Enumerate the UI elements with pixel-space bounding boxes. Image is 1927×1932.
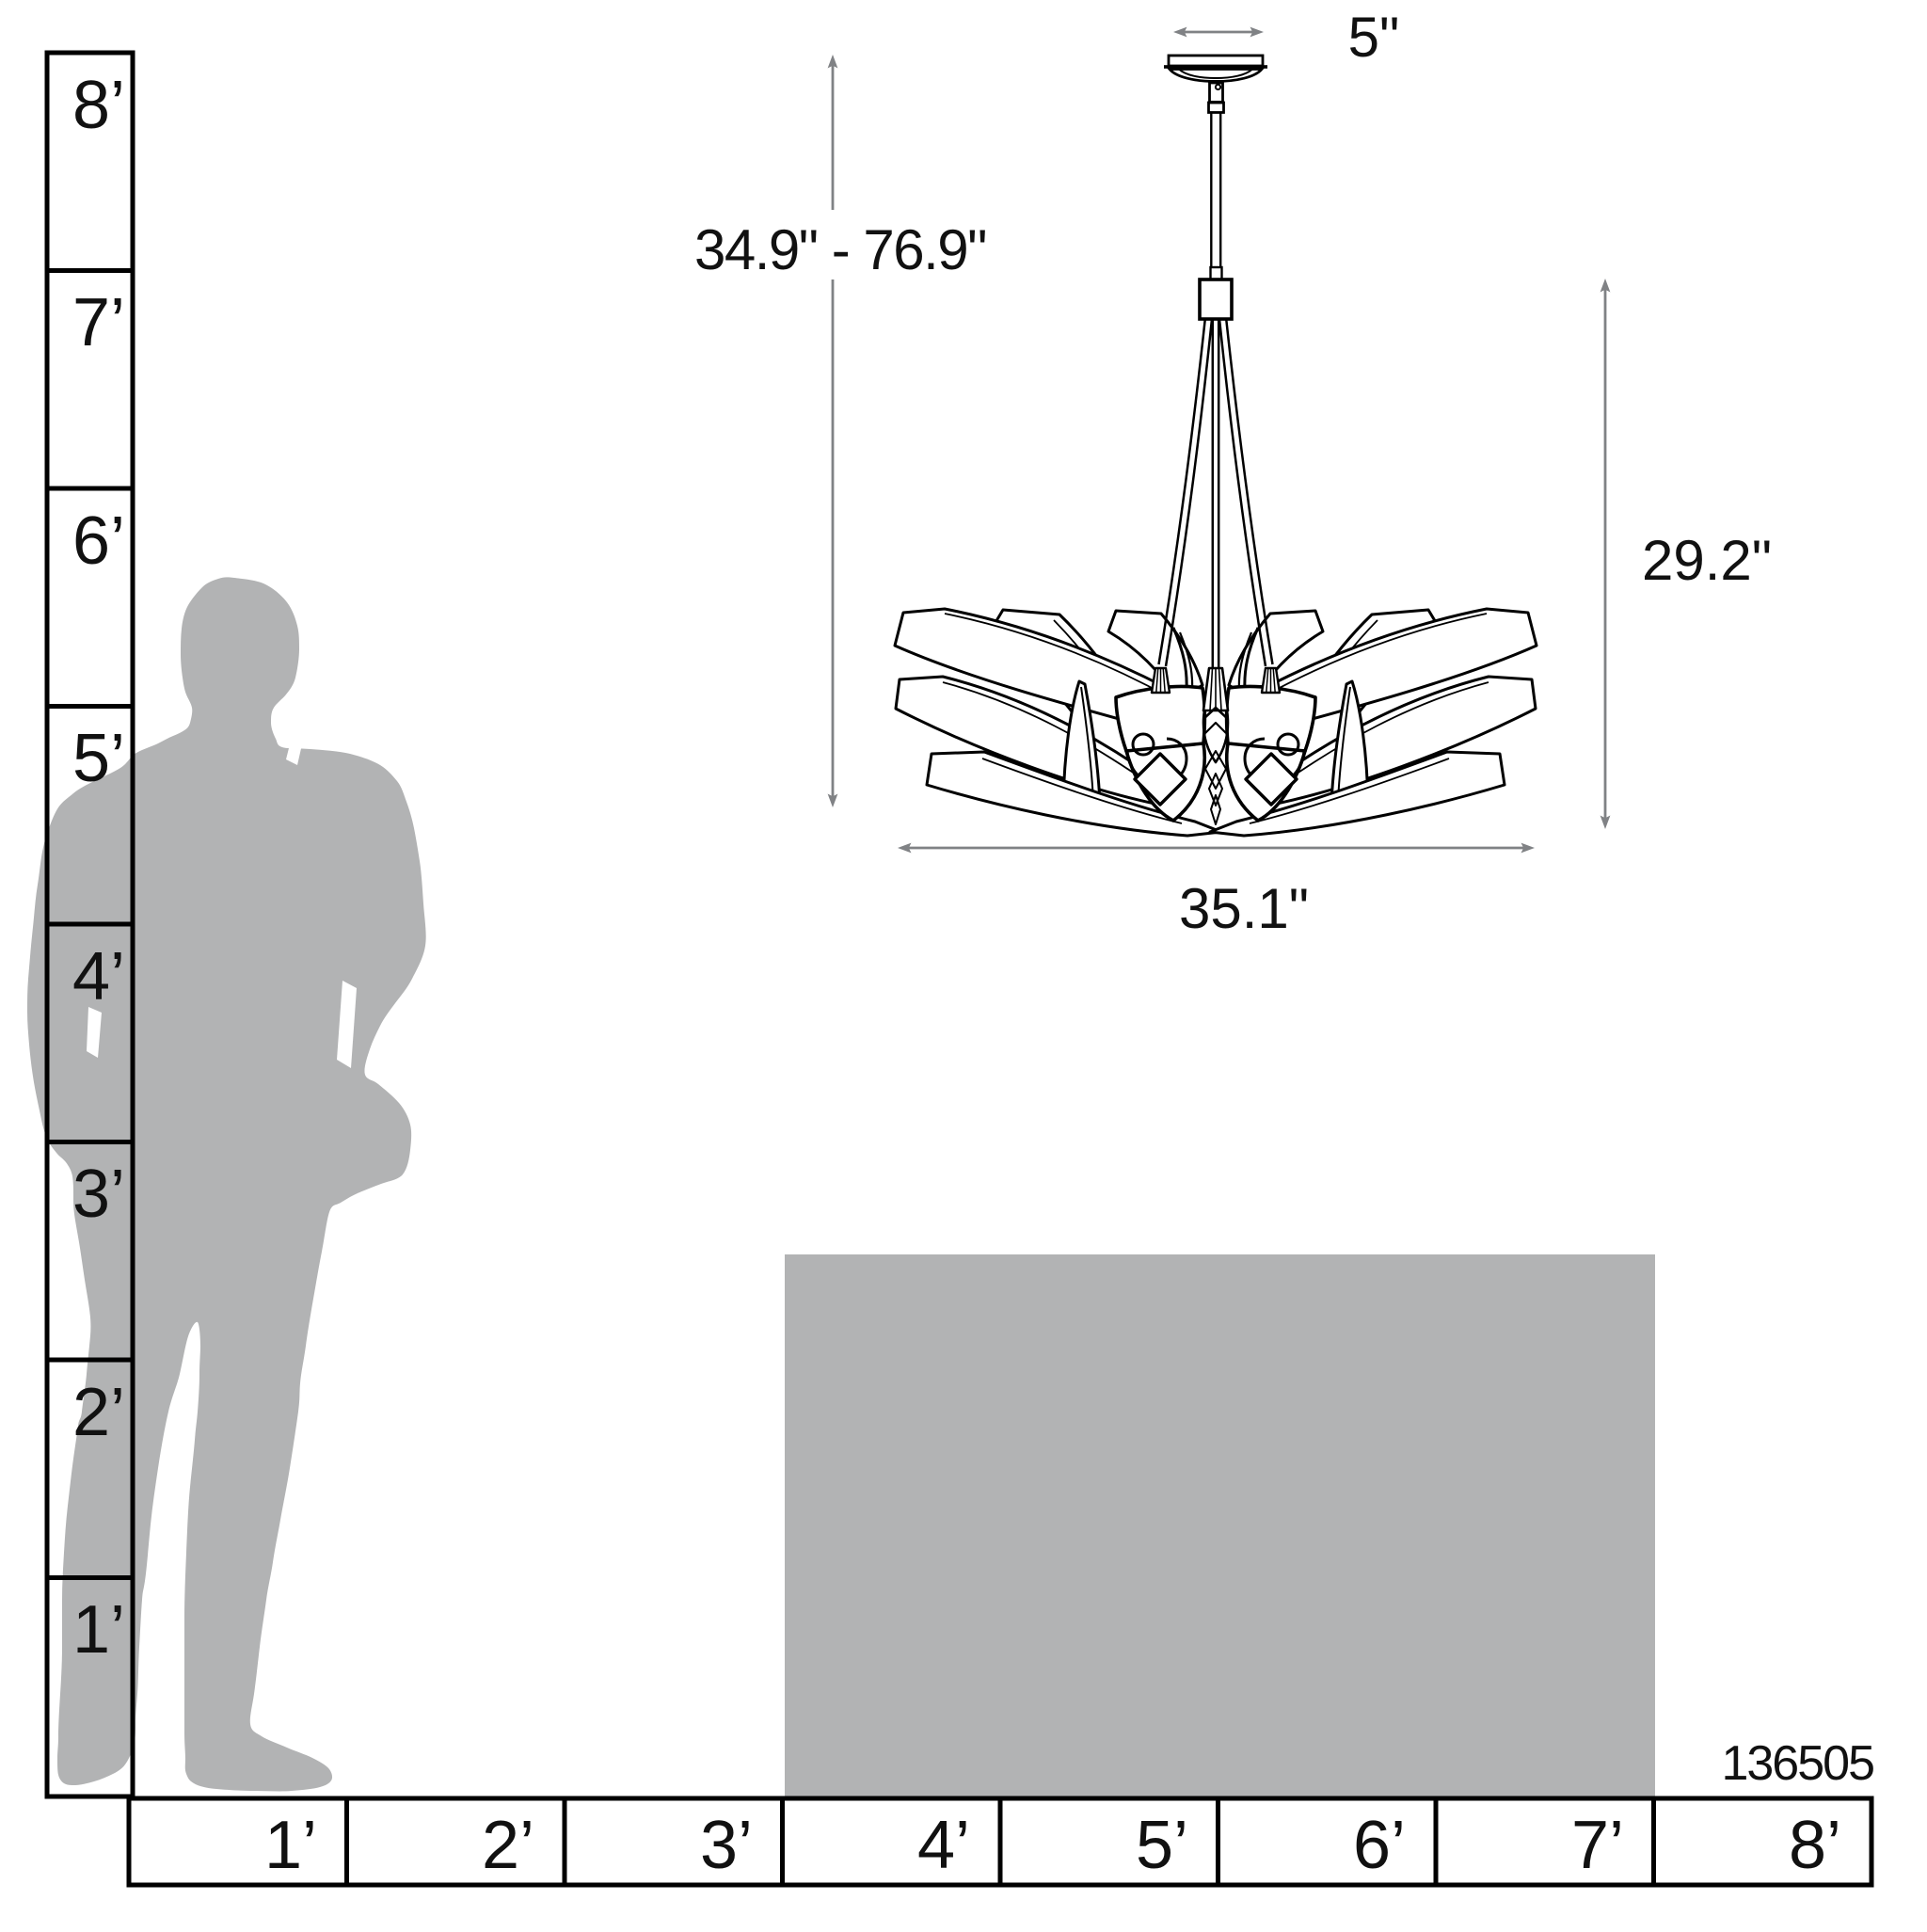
svg-text:5": 5" bbox=[1348, 6, 1400, 69]
svg-text:136505: 136505 bbox=[1721, 1736, 1873, 1791]
svg-text:2’: 2’ bbox=[72, 1375, 125, 1450]
svg-text:3’: 3’ bbox=[72, 1157, 125, 1232]
svg-text:6’: 6’ bbox=[72, 503, 125, 579]
svg-text:1’: 1’ bbox=[72, 1592, 125, 1668]
svg-text:34.9" - 76.9": 34.9" - 76.9" bbox=[694, 218, 986, 281]
svg-text:6’: 6’ bbox=[1353, 1808, 1406, 1883]
svg-text:35.1": 35.1" bbox=[1179, 877, 1309, 940]
svg-text:5’: 5’ bbox=[1136, 1808, 1188, 1883]
svg-text:7’: 7’ bbox=[72, 285, 125, 360]
svg-text:8’: 8’ bbox=[1789, 1808, 1841, 1883]
svg-text:2’: 2’ bbox=[482, 1808, 534, 1883]
svg-text:8’: 8’ bbox=[72, 68, 125, 143]
svg-text:29.2": 29.2" bbox=[1642, 529, 1772, 592]
svg-text:5’: 5’ bbox=[72, 721, 125, 796]
svg-text:7’: 7’ bbox=[1571, 1808, 1624, 1883]
svg-text:4’: 4’ bbox=[917, 1808, 970, 1883]
svg-text:4’: 4’ bbox=[72, 939, 125, 1014]
svg-text:1’: 1’ bbox=[264, 1808, 317, 1883]
svg-text:3’: 3’ bbox=[700, 1808, 753, 1883]
